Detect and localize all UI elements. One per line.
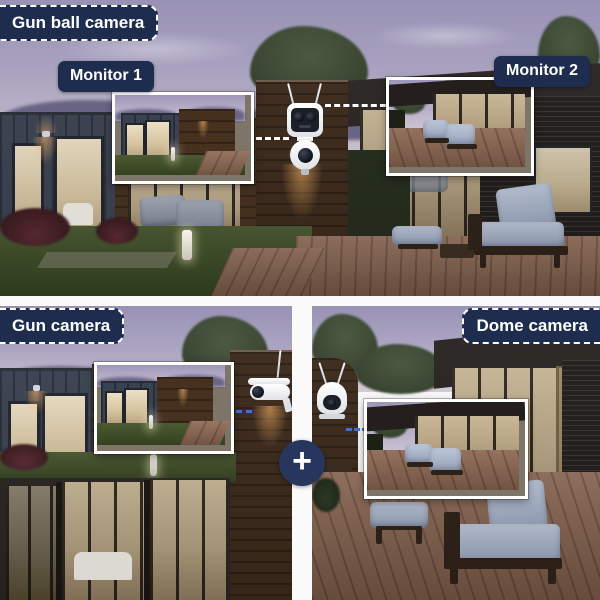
- garden-path: [37, 252, 177, 268]
- path-light: [150, 454, 157, 476]
- monitor1-frame: [112, 92, 254, 184]
- camera-face: [291, 108, 319, 132]
- top-panel: Gun ball camera Monitor 1 Monitor 2: [0, 0, 600, 296]
- bottom-left-panel: Gun camera: [0, 306, 292, 600]
- mini-chair-frame: [425, 138, 449, 143]
- chair-leg: [450, 568, 458, 584]
- mini-chair-frame: [447, 144, 477, 149]
- camera-lens: [252, 386, 264, 398]
- plus-icon: +: [279, 440, 325, 486]
- lounge-chair-seat: [478, 222, 564, 248]
- camera-lens: [294, 112, 304, 122]
- mini-lounge-chair: [429, 448, 461, 472]
- mini-path-light: [171, 147, 175, 161]
- mini-wood-wall: [157, 377, 213, 427]
- plus-symbol: +: [292, 444, 312, 478]
- gun-ball-camera-tag: Gun ball camera: [0, 5, 158, 41]
- dome-camera-tag: Dome camera: [462, 308, 600, 344]
- mini-window: [105, 391, 124, 425]
- monitor1-tag-label: Monitor 1: [70, 67, 142, 84]
- lounge-chair-arm: [468, 214, 482, 250]
- ottoman-leg: [376, 526, 382, 544]
- glass-panel: [6, 486, 56, 600]
- chair-leg: [480, 254, 486, 268]
- monitor2-frame: [386, 77, 534, 176]
- red-plant: [96, 218, 138, 244]
- house-facade: [0, 478, 230, 600]
- mini-chair-frame: [431, 470, 463, 475]
- mini-wall-light: [197, 121, 209, 139]
- ottoman-legs: [398, 244, 438, 249]
- mini-lounge-chair: [445, 124, 475, 146]
- gun-camera-tag-label: Gun camera: [12, 316, 110, 335]
- monitor2-tag-label: Monitor 2: [506, 62, 578, 79]
- camera-upper-module: [287, 103, 323, 137]
- chair-leg: [548, 568, 556, 584]
- monitor2-tag: Monitor 2: [494, 56, 590, 87]
- mini-path-light: [149, 415, 153, 429]
- shrub: [312, 478, 340, 512]
- gun-camera-icon: [246, 350, 292, 434]
- ottoman: [370, 502, 428, 528]
- camera-lens: [298, 148, 313, 163]
- wall-light-glow: [24, 391, 48, 415]
- red-plant: [0, 208, 70, 246]
- bottom-right-panel: Dome camera: [312, 306, 600, 600]
- ottoman-leg: [416, 526, 422, 544]
- mini-window: [145, 120, 171, 160]
- camera-lens: [328, 399, 336, 407]
- dome-camera-tag-label: Dome camera: [476, 316, 588, 335]
- mini-chair-frame: [407, 462, 433, 467]
- horizontal-divider: [0, 296, 600, 306]
- wall-light-glow: [32, 137, 58, 165]
- gun-ball-camera-tag-label: Gun ball camera: [12, 13, 144, 32]
- lounge-chair-arm: [444, 512, 460, 564]
- chair-leg: [554, 254, 560, 268]
- camera-detail: [299, 125, 311, 128]
- camera-lens: [306, 112, 316, 122]
- mini-wall-light: [177, 389, 189, 407]
- dome-camera-view-frame: [364, 399, 528, 499]
- gun-camera-tag: Gun camera: [0, 308, 124, 344]
- path-light: [182, 230, 192, 260]
- dome-camera-icon: [312, 362, 354, 440]
- product-image: Gun ball camera Monitor 1 Monitor 2: [0, 0, 600, 600]
- monitor1-tag: Monitor 1: [58, 61, 154, 92]
- camera-base: [319, 414, 345, 419]
- glass-panel: [150, 480, 226, 600]
- wall-light-glow: [252, 406, 288, 448]
- camera-antenna: [277, 350, 282, 378]
- glass-panel: [62, 482, 144, 600]
- connector-line: [325, 104, 386, 107]
- gun-camera-view-frame: [94, 362, 234, 454]
- red-plant: [0, 444, 48, 470]
- lounge-chair-frame: [444, 558, 562, 569]
- gun-ball-camera-icon: [281, 83, 329, 175]
- camera-face: [323, 395, 341, 410]
- camera-ball: [290, 140, 320, 170]
- camera-body: [317, 382, 347, 414]
- mini-window: [125, 123, 145, 159]
- mini-window: [124, 388, 149, 426]
- camera-mount: [301, 169, 309, 175]
- bed: [74, 552, 132, 580]
- cloud: [370, 22, 520, 50]
- ottoman: [392, 226, 442, 246]
